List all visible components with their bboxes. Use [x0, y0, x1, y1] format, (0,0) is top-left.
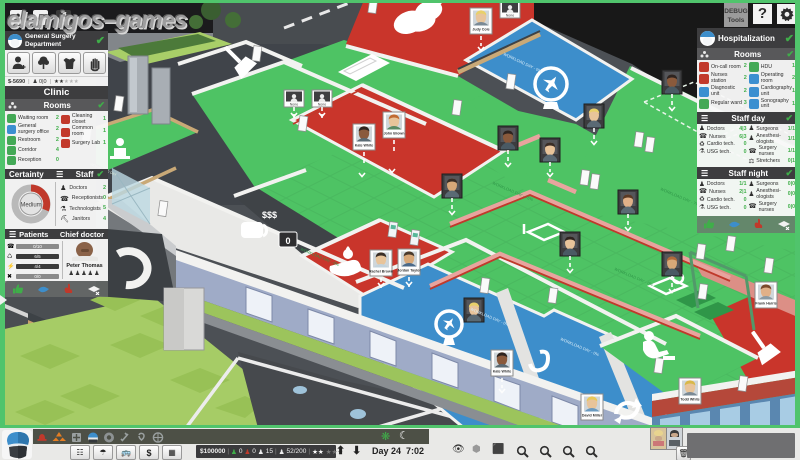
svg-text:None: None	[506, 14, 515, 18]
svg-text:David Miller: David Miller	[582, 414, 603, 418]
svg-text:0: 0	[285, 236, 290, 246]
svg-text:Medium: Medium	[20, 203, 41, 209]
svg-text:Rachel Brown: Rachel Brown	[369, 270, 393, 274]
svg-text:Judy Cole: Judy Cole	[472, 28, 489, 32]
svg-text:None: None	[290, 103, 299, 107]
svg-text:John Brown: John Brown	[384, 132, 405, 136]
svg-text:Kate White: Kate White	[355, 144, 374, 148]
svg-text:None: None	[318, 103, 327, 107]
svg-text:Jordan Taylor: Jordan Taylor	[397, 269, 421, 273]
svg-text:$$$: $$$	[262, 210, 277, 220]
svg-text:Todd White: Todd White	[680, 398, 699, 402]
svg-text:Kate White: Kate White	[493, 370, 512, 374]
svg-text:Frank Harris: Frank Harris	[755, 302, 776, 306]
